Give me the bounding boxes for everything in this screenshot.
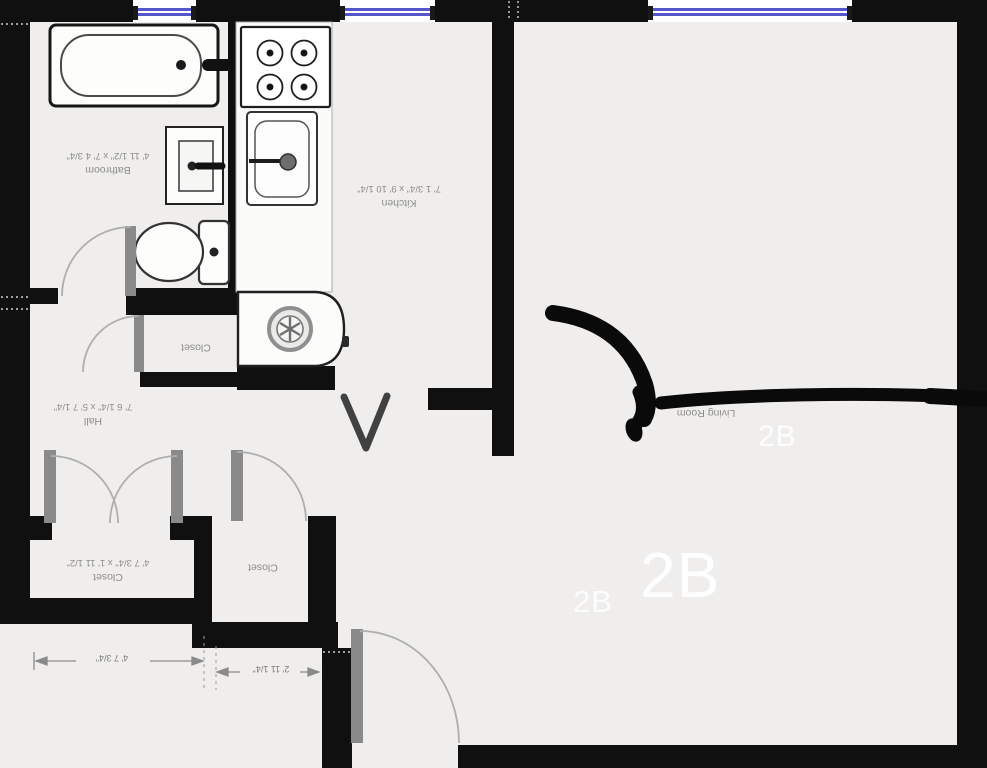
bathroom-sink-icon bbox=[166, 127, 223, 204]
washer-icon bbox=[238, 292, 349, 366]
dimension-guide bbox=[204, 636, 216, 690]
closet-right-door-arc bbox=[237, 452, 306, 521]
kitchen-door-v-icon bbox=[344, 396, 387, 448]
stove-icon bbox=[241, 27, 330, 107]
kitchen-sink-icon bbox=[247, 112, 317, 205]
closet-right-door-leaf bbox=[231, 450, 243, 521]
bathroom-door-leaf bbox=[125, 226, 136, 296]
bathtub-icon bbox=[50, 25, 235, 106]
double-door-left-leaf bbox=[44, 450, 56, 523]
bathroom-door-arc bbox=[62, 227, 131, 296]
closet-upper-door-arc bbox=[83, 316, 139, 372]
dimension-line bbox=[34, 652, 319, 676]
entry-door-leaf bbox=[351, 629, 363, 743]
closet-upper-door-leaf bbox=[134, 315, 144, 372]
floor-plan: 2B 2B 2B Bathroom 4' 11 1/2" x 7' 4 3/4"… bbox=[0, 0, 987, 768]
double-door-right-leaf bbox=[171, 450, 183, 523]
plan-graphics bbox=[0, 0, 987, 768]
toilet-icon bbox=[135, 221, 229, 284]
marker-scribble bbox=[553, 313, 986, 426]
double-door-right-arc bbox=[110, 456, 177, 523]
entry-door-arc bbox=[360, 631, 459, 743]
double-door-left-arc bbox=[51, 456, 118, 523]
